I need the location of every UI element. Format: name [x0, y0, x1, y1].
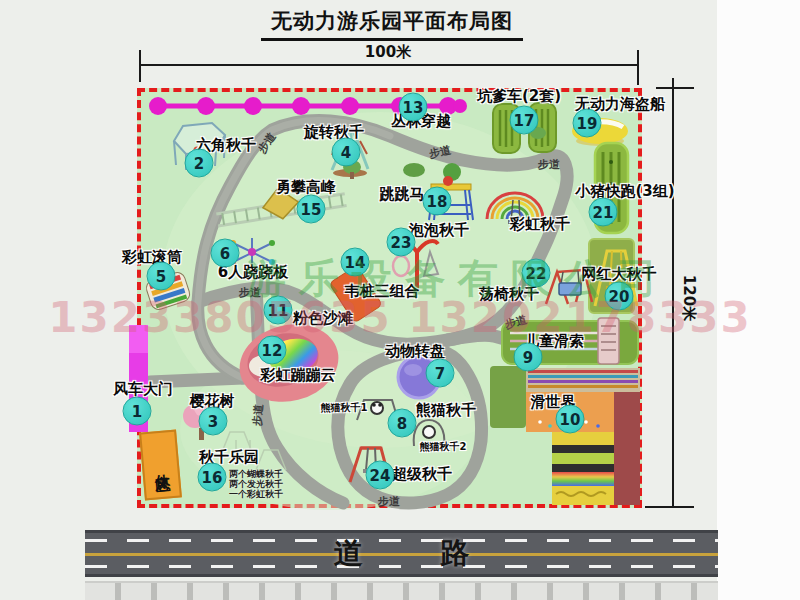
park-plan-image: 无动力游乐园平面布局图 100米 120米 游乐设备有限公司 132338056…: [0, 0, 800, 600]
dimension-width-label: 100米: [365, 43, 411, 62]
item-5-badge: 5: [147, 262, 176, 291]
item-3-badge: 3: [199, 407, 228, 436]
item-10-badge: 10: [556, 405, 585, 434]
item-6-badge: 6: [211, 239, 240, 268]
item-24-label: 超级秋千: [392, 465, 452, 484]
item-4-label: 旋转秋千: [304, 123, 364, 142]
item-17-label: 坑爹车(2套): [477, 87, 561, 106]
item-19-badge: 19: [573, 109, 602, 138]
item-24-badge: 24: [366, 461, 395, 490]
rest-area-box: 休息区: [139, 430, 182, 501]
item-13-badge: 13: [399, 93, 428, 122]
item-12-label: 彩虹蹦蹦云: [261, 366, 336, 385]
rest-area-label: 休息区: [151, 461, 170, 469]
item-7-label: 动物转盘: [385, 342, 445, 361]
item-23-label: 泡泡秋千: [409, 221, 469, 240]
watermark-phone: 13233805635 13202178333: [48, 293, 752, 342]
road: 道 路: [85, 530, 718, 577]
item-15-badge: 15: [297, 195, 326, 224]
item-4-badge: 4: [332, 138, 361, 167]
item-8-label: 熊猫秋千: [416, 401, 476, 420]
walkway-label: 步道: [250, 403, 267, 426]
rainbow-swing-label: 彩虹秋千: [510, 215, 570, 234]
item-8-badge: 8: [388, 409, 417, 438]
item-9-badge: 9: [514, 343, 543, 372]
panda-swing-2-label: 熊猫秋千2: [420, 440, 467, 454]
item-15-label: 勇攀高峰: [276, 178, 336, 197]
sidewalk-tiles: [85, 581, 718, 600]
panda-swing-1-label: 熊猫秋千1: [321, 401, 368, 415]
item-1-badge: 1: [123, 397, 152, 426]
item-18-badge: 18: [423, 187, 452, 216]
item-2-badge: 2: [185, 149, 214, 178]
item-21-badge: 21: [589, 198, 618, 227]
road-label: 道 路: [299, 534, 503, 574]
item-21-label: 小猪快跑(3组): [575, 182, 674, 201]
item-17-badge: 17: [510, 106, 539, 135]
item-7-badge: 7: [426, 359, 455, 388]
walkway-label: 步道: [378, 494, 400, 509]
swing-park-note-3: 一个彩虹秋千: [229, 488, 283, 501]
item-16-badge: 16: [198, 463, 227, 492]
walkway-label: 步道: [538, 157, 560, 172]
item-1-label: 风车大门: [113, 380, 173, 399]
item-18-label: 跳跳马: [380, 185, 425, 204]
page-title: 无动力游乐园平面布局图: [261, 7, 523, 41]
